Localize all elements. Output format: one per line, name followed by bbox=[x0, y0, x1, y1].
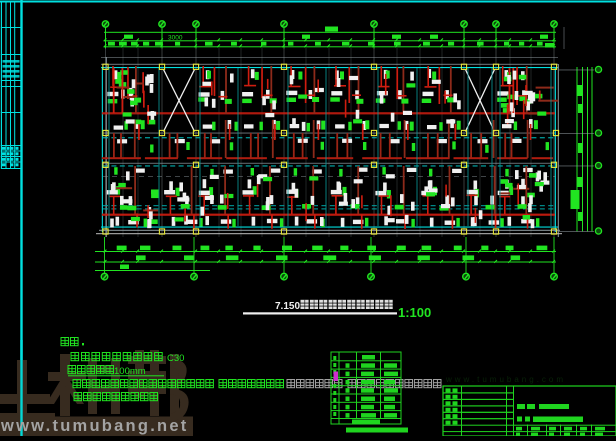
svg-text:7.150: 7.150 bbox=[275, 301, 300, 312]
svg-text:www.tumubang.com: www.tumubang.com bbox=[445, 375, 566, 384]
svg-text:C30: C30 bbox=[167, 353, 184, 364]
svg-text:www.tumubang.net: www.tumubang.net bbox=[0, 417, 189, 435]
svg-text:3000: 3000 bbox=[168, 35, 183, 42]
svg-text:1:100: 1:100 bbox=[398, 305, 431, 320]
